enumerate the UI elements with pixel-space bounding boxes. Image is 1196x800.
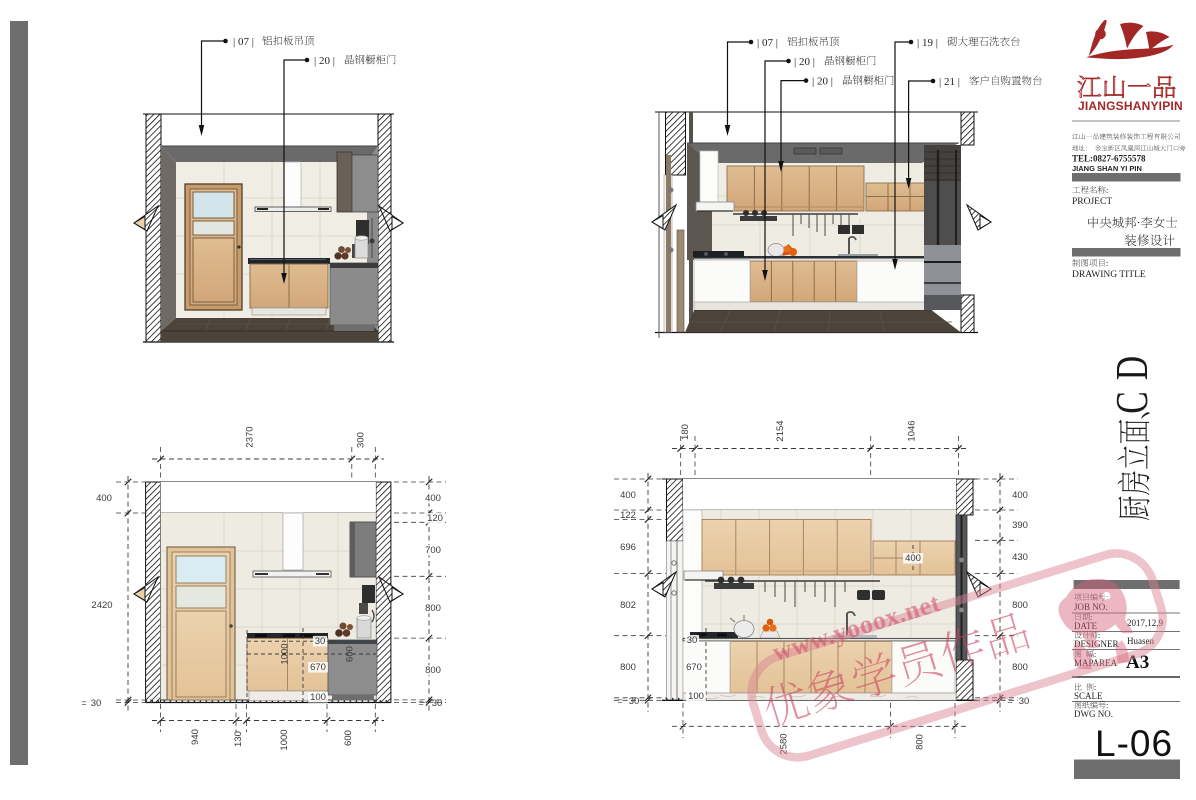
svg-text:802: 802 [620, 600, 636, 611]
svg-text:670: 670 [686, 662, 702, 673]
svg-text:800: 800 [915, 734, 926, 750]
svg-text:130: 130 [233, 731, 244, 747]
svg-text:2420: 2420 [91, 600, 112, 611]
svg-text:1000: 1000 [280, 643, 291, 664]
svg-text:D: D [1106, 356, 1157, 380]
svg-text:DRAWING TITLE: DRAWING TITLE [1072, 270, 1146, 280]
svg-text:400: 400 [905, 553, 921, 564]
svg-text:600: 600 [345, 646, 356, 662]
svg-text:30: 30 [91, 698, 102, 709]
svg-text:400: 400 [96, 493, 112, 504]
svg-text:1000: 1000 [279, 729, 290, 750]
svg-text:30: 30 [1019, 696, 1030, 707]
svg-text:400: 400 [1012, 490, 1028, 501]
svg-text:| 20 |: | 20 | [314, 55, 335, 67]
svg-text:100: 100 [310, 692, 326, 703]
svg-text:JIANGSHANYIPIN: JIANGSHANYIPIN [1078, 99, 1183, 113]
svg-text:=: = [81, 698, 86, 708]
svg-text:696: 696 [620, 542, 636, 553]
svg-text:2370: 2370 [245, 426, 256, 447]
svg-text:DWG NO.: DWG NO. [1074, 709, 1113, 719]
svg-text:120: 120 [427, 513, 443, 524]
svg-text:JIANG SHAN YI PIN: JIANG SHAN YI PIN [1072, 164, 1142, 173]
svg-text:TEL:0827-6755578: TEL:0827-6755578 [1072, 154, 1146, 164]
svg-text:SCALE: SCALE [1074, 691, 1103, 701]
svg-text:| 20 |: | 20 | [794, 56, 815, 68]
svg-text:| 20 |: | 20 | [812, 75, 833, 87]
svg-text:| 07 |: | 07 | [757, 37, 778, 49]
svg-text:30: 30 [687, 635, 698, 646]
svg-text:400: 400 [620, 490, 636, 501]
svg-text:100: 100 [688, 691, 704, 702]
svg-text:670: 670 [310, 662, 326, 673]
svg-text:30: 30 [629, 696, 640, 707]
svg-text:C: C [1106, 391, 1157, 413]
svg-text:800: 800 [1012, 662, 1028, 673]
svg-text::: : [1106, 185, 1108, 195]
svg-text:=: = [418, 698, 423, 708]
svg-text:2154: 2154 [775, 420, 786, 441]
svg-text:400: 400 [425, 493, 441, 504]
svg-text:30: 30 [432, 698, 443, 709]
svg-text:300: 300 [356, 432, 367, 448]
svg-text:430: 430 [1012, 552, 1028, 563]
svg-text:=: = [617, 696, 622, 706]
svg-text:1046: 1046 [907, 420, 918, 441]
svg-text:| 21 |: | 21 | [939, 76, 960, 88]
svg-text:L-06: L-06 [1095, 723, 1173, 764]
svg-text:| 19 |: | 19 | [917, 37, 938, 49]
svg-text:PROJECT: PROJECT [1072, 197, 1112, 207]
svg-text:122: 122 [620, 510, 636, 521]
svg-text:| 07 |: | 07 | [233, 36, 254, 48]
svg-text:180: 180 [680, 424, 691, 440]
svg-text:940: 940 [190, 729, 201, 745]
svg-text:800: 800 [425, 665, 441, 676]
svg-text:800: 800 [1012, 600, 1028, 611]
svg-text:800: 800 [620, 662, 636, 673]
svg-text:390: 390 [1012, 520, 1028, 531]
svg-text::: : [1106, 258, 1108, 268]
svg-text:600: 600 [343, 730, 354, 746]
svg-text:700: 700 [425, 545, 441, 556]
svg-text:30: 30 [315, 636, 326, 647]
svg-text:800: 800 [425, 603, 441, 614]
